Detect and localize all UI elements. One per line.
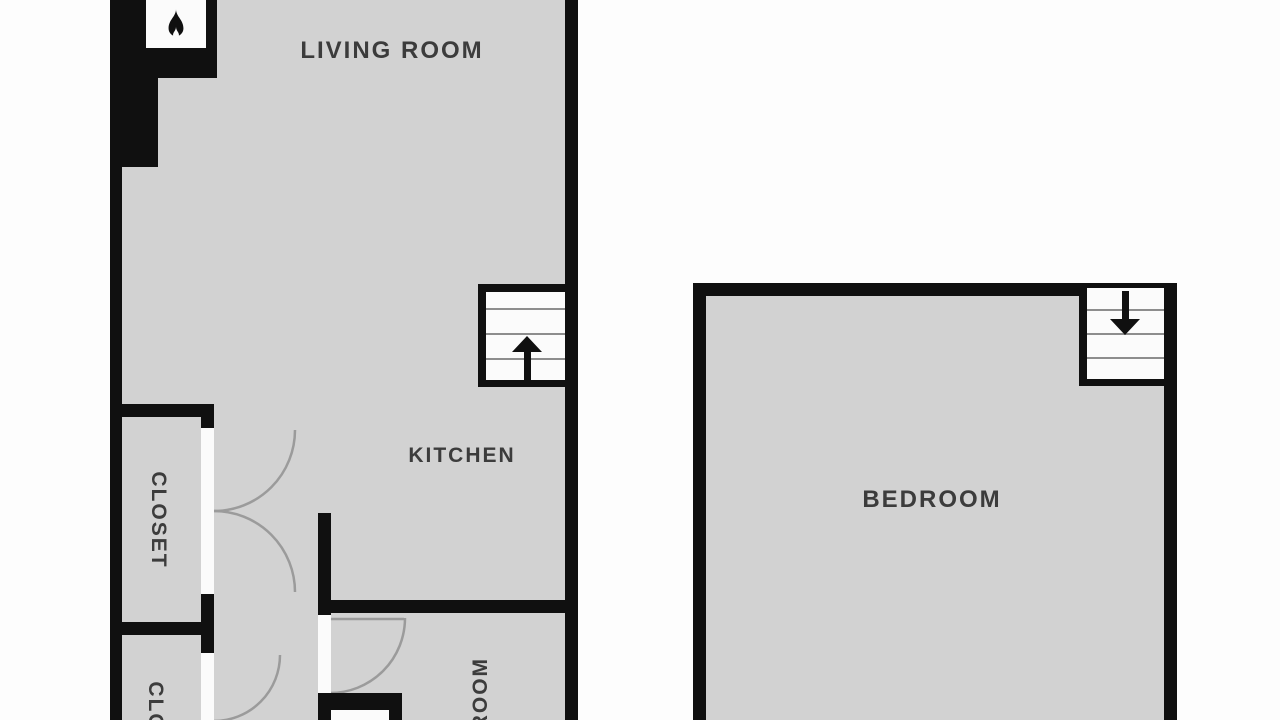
closet-upper-door-arc-top (214, 430, 295, 511)
stairs-up-border-top (478, 284, 565, 292)
floor-plan-canvas: LIVING ROOM KITCHEN CLOSET CLOSET BATHRO… (0, 0, 1280, 720)
wall-bedroom-right (1164, 283, 1177, 720)
closet-lower-door-gap (201, 653, 214, 720)
stairs-down-border-bottom (1079, 379, 1170, 386)
wall-closet-top (110, 404, 214, 417)
bathroom-fixture (331, 710, 389, 720)
wall-door-post-top (201, 416, 214, 428)
stairs-up-border-bottom (478, 380, 565, 387)
room-label-kitchen: KITCHEN (408, 444, 515, 468)
fireplace-flame-icon (163, 8, 189, 42)
room-label-bathroom: BATHROOM (469, 657, 493, 720)
closet-lower-door-arc (214, 655, 280, 720)
stairs-up-border-left (478, 284, 486, 387)
stairs-down-border-left (1079, 284, 1087, 386)
wall-closet-divider (110, 622, 214, 635)
bathroom-door-arc (330, 618, 405, 693)
room-label-bedroom: BEDROOM (862, 486, 1001, 514)
room-label-closet-upper: CLOSET (146, 471, 170, 568)
room-label-closet-lower: CLOSET (143, 681, 167, 720)
stair-tread (486, 308, 565, 310)
stair-tread (1087, 357, 1164, 359)
chimney-step (110, 78, 158, 167)
wall-bedroom-left (693, 283, 706, 720)
wall-kitchen-bath-horizontal (318, 600, 578, 613)
stair-tread (486, 333, 565, 335)
room-label-living-room: LIVING ROOM (300, 37, 483, 65)
bathroom-door-gap (318, 615, 331, 693)
closet-upper-door-arc-bottom (214, 511, 295, 592)
closet-upper-door-gap (201, 428, 214, 594)
